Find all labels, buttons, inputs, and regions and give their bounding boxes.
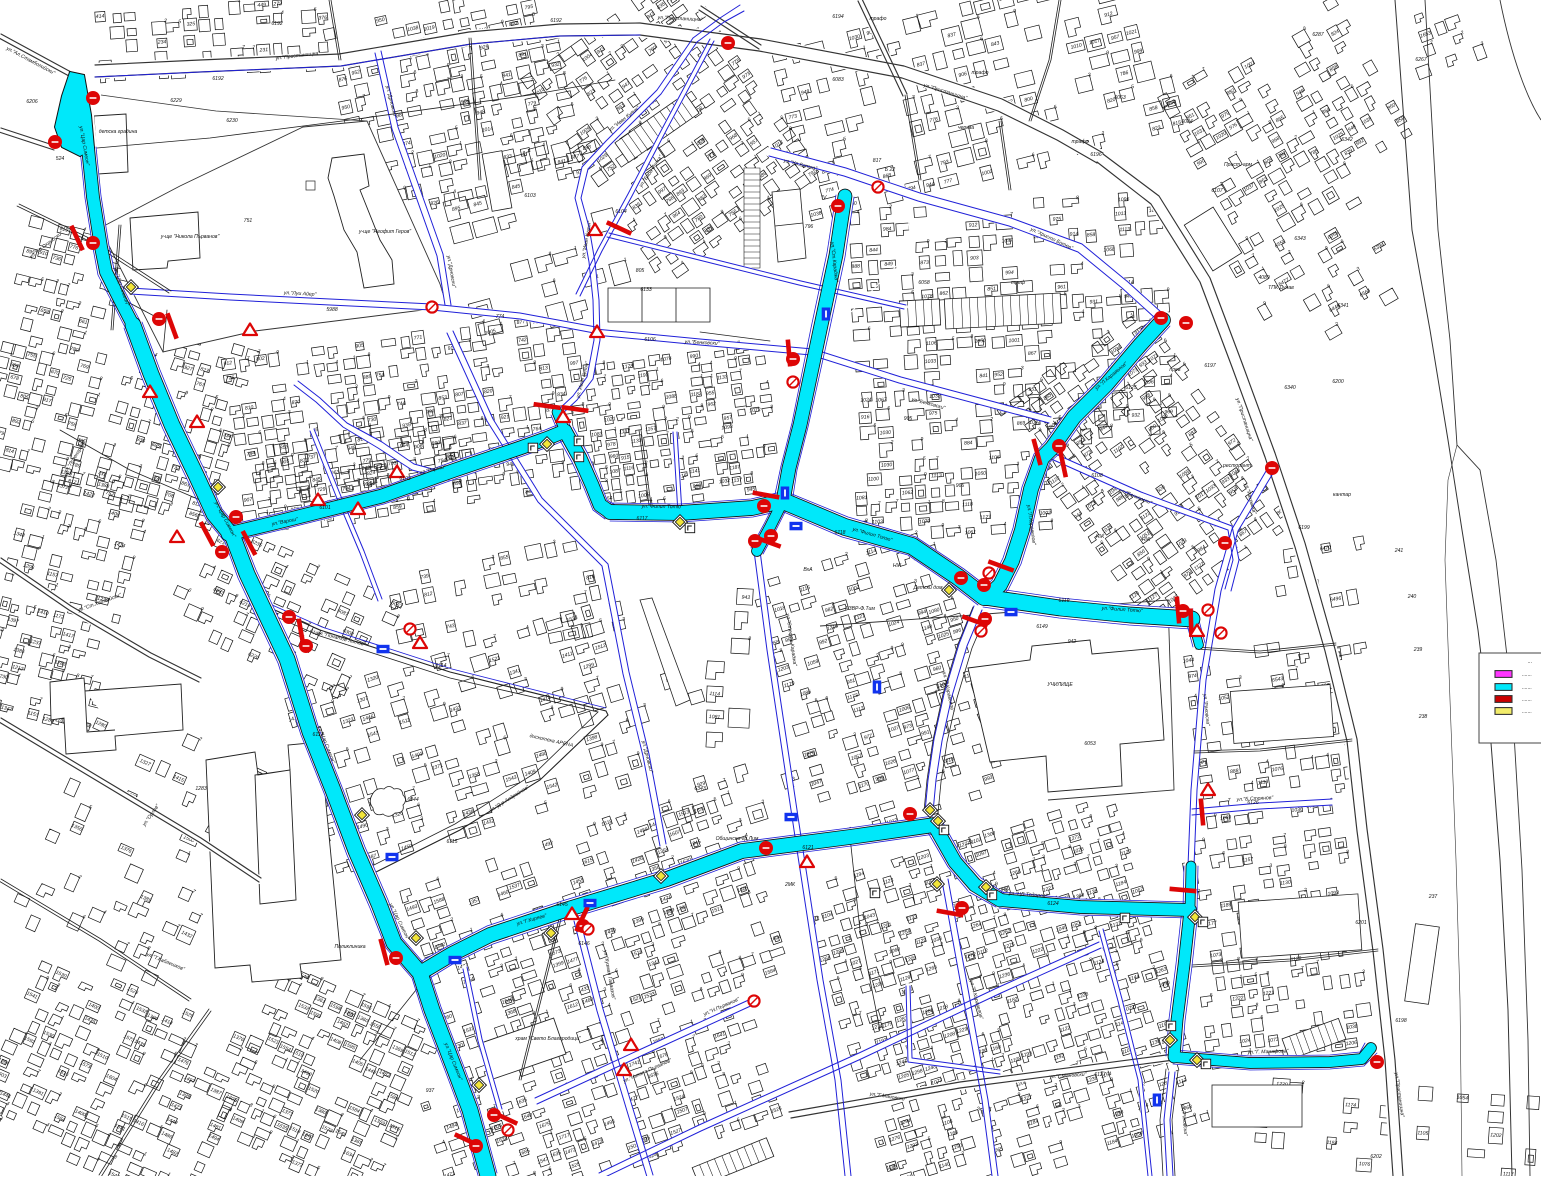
svg-text:6200: 6200 (1332, 379, 1343, 385)
svg-text:1068: 1068 (1103, 247, 1115, 254)
svg-text:955: 955 (706, 390, 715, 397)
svg-text:6: 6 (314, 7, 317, 13)
svg-text:805: 805 (636, 268, 645, 274)
svg-text:6119: 6119 (1059, 598, 1070, 604)
svg-text:960: 960 (609, 453, 618, 460)
svg-text:Б 22: Б 22 (885, 167, 896, 173)
svg-text:1054: 1054 (1456, 1095, 1468, 1102)
svg-text:5: 5 (178, 19, 181, 25)
svg-text:858: 858 (1087, 232, 1096, 239)
svg-text:943: 943 (741, 595, 750, 601)
svg-text:6126: 6126 (1247, 800, 1258, 806)
svg-text:7: 7 (242, 45, 245, 51)
svg-text:1118: 1118 (962, 502, 973, 509)
svg-text:813: 813 (539, 365, 548, 372)
svg-text:1100: 1100 (868, 476, 880, 483)
svg-text:4: 4 (1169, 373, 1172, 379)
svg-text:810: 810 (245, 405, 254, 412)
svg-text:862: 862 (939, 290, 948, 297)
svg-text:796: 796 (805, 224, 814, 230)
svg-text:1070: 1070 (919, 519, 931, 526)
svg-text:9: 9 (941, 523, 944, 529)
svg-text:3: 3 (1016, 461, 1019, 467)
svg-text:1106: 1106 (989, 455, 1001, 462)
svg-text:903: 903 (970, 255, 979, 262)
svg-text:771: 771 (413, 334, 422, 341)
svg-text:1: 1 (928, 499, 931, 505)
svg-text:...: ... (1528, 659, 1532, 665)
svg-text:1081: 1081 (709, 714, 721, 721)
svg-text:черква: черква (958, 125, 974, 131)
svg-text:8: 8 (1119, 293, 1122, 299)
svg-text:272: 272 (272, 1, 282, 8)
svg-text:851: 851 (987, 286, 996, 293)
svg-text:1: 1 (238, 0, 241, 4)
svg-text:6115: 6115 (447, 839, 458, 845)
svg-text:937: 937 (426, 1088, 435, 1094)
svg-text:1001: 1001 (1008, 337, 1020, 344)
svg-text:1050: 1050 (974, 338, 986, 345)
svg-text:916: 916 (861, 414, 870, 421)
svg-text:912: 912 (969, 222, 978, 229)
svg-text:974: 974 (1188, 673, 1197, 680)
svg-text:ресторант: ресторант (1222, 463, 1251, 469)
svg-text:7: 7 (936, 456, 939, 462)
svg-text:1096: 1096 (1118, 197, 1130, 204)
svg-text:6343: 6343 (1294, 236, 1305, 242)
svg-text:ТПК Дунав: ТПК Дунав (1268, 285, 1294, 291)
svg-text:951: 951 (1028, 386, 1037, 393)
svg-text:4: 4 (955, 417, 958, 423)
svg-text:751: 751 (244, 218, 253, 224)
svg-text:6063: 6063 (1114, 95, 1125, 101)
svg-text:.......: ....... (1522, 685, 1532, 691)
svg-text:трафо: трафо (972, 70, 989, 76)
svg-text:844: 844 (869, 247, 878, 254)
svg-text:6343: 6343 (694, 786, 705, 792)
svg-text:6133: 6133 (640, 287, 651, 293)
svg-text:754: 754 (375, 372, 384, 379)
svg-text:6201: 6201 (1355, 920, 1366, 926)
svg-text:957: 957 (723, 415, 732, 422)
svg-text:1030: 1030 (880, 430, 892, 437)
svg-text:961: 961 (1057, 284, 1066, 291)
svg-text:4089: 4089 (1258, 275, 1269, 281)
svg-text:742: 742 (518, 337, 527, 344)
svg-text:1: 1 (1082, 309, 1085, 315)
svg-text:детска градина: детска градина (99, 129, 138, 135)
svg-text:906: 906 (956, 483, 965, 489)
svg-text:6113: 6113 (313, 732, 324, 738)
svg-text:802: 802 (256, 356, 265, 363)
svg-text:837: 837 (458, 420, 467, 427)
svg-text:6192: 6192 (212, 76, 223, 82)
svg-text:трафо: трафо (1072, 139, 1089, 145)
svg-text:867: 867 (1028, 350, 1037, 357)
svg-text:5: 5 (911, 290, 914, 296)
svg-text:6101: 6101 (319, 505, 330, 511)
svg-text:1061: 1061 (965, 529, 977, 536)
svg-text:797: 797 (426, 408, 435, 415)
svg-text:884: 884 (964, 440, 973, 447)
svg-text:241: 241 (1394, 548, 1404, 554)
svg-text:9: 9 (920, 436, 923, 442)
svg-text:449: 449 (257, 2, 266, 9)
svg-text:859: 859 (393, 504, 402, 511)
svg-text:2: 2 (989, 417, 993, 423)
svg-text:914: 914 (1070, 231, 1079, 238)
svg-text:978: 978 (607, 441, 616, 448)
svg-text:807: 807 (455, 391, 464, 398)
svg-text:4: 4 (1080, 261, 1083, 267)
svg-text:6145: 6145 (556, 902, 567, 908)
svg-text:975: 975 (1052, 216, 1061, 223)
svg-text:853: 853 (279, 444, 288, 451)
svg-text:1033: 1033 (925, 358, 937, 365)
svg-text:IV: IV (822, 195, 827, 201)
svg-text:7: 7 (252, 45, 255, 51)
svg-text:6341: 6341 (1337, 303, 1348, 309)
svg-text:6340: 6340 (1284, 385, 1295, 391)
svg-text:6199: 6199 (1298, 525, 1309, 531)
svg-text:6117: 6117 (637, 516, 648, 522)
svg-text:744: 744 (397, 400, 406, 407)
svg-text:960: 960 (692, 483, 701, 490)
svg-text:6053: 6053 (1084, 741, 1095, 747)
svg-text:6106: 6106 (644, 337, 655, 343)
svg-text:.......: ....... (1522, 709, 1532, 715)
svg-text:5: 5 (873, 423, 876, 429)
svg-text:776: 776 (225, 375, 234, 382)
svg-text:9: 9 (926, 239, 929, 245)
svg-text:у-ще "Неофит Геров": у-ще "Неофит Геров" (358, 229, 411, 235)
svg-text:1050: 1050 (975, 471, 987, 478)
svg-text:4: 4 (856, 209, 859, 215)
svg-text:9: 9 (924, 472, 927, 478)
svg-text:1202: 1202 (1490, 1132, 1502, 1139)
svg-text:1013: 1013 (1115, 211, 1127, 218)
svg-text:6342: 6342 (1341, 137, 1352, 143)
svg-text:869: 869 (1017, 420, 1026, 427)
svg-text:5: 5 (923, 456, 926, 462)
svg-text:888: 888 (851, 263, 860, 270)
svg-text:6229: 6229 (170, 98, 181, 104)
svg-text:2: 2 (944, 238, 948, 244)
svg-text:905: 905 (355, 343, 364, 350)
svg-text:5: 5 (887, 406, 890, 412)
svg-text:НЖ: НЖ (1142, 537, 1151, 543)
svg-text:984: 984 (883, 226, 892, 233)
svg-text:8: 8 (748, 636, 751, 642)
svg-text:кантар: кантар (1333, 492, 1351, 498)
svg-text:6267: 6267 (1415, 57, 1426, 63)
svg-text:962: 962 (707, 401, 716, 408)
svg-text:4: 4 (281, 10, 284, 16)
svg-text:1067: 1067 (875, 397, 887, 404)
svg-text:3: 3 (902, 388, 905, 394)
svg-text:2МК: 2МК (784, 882, 796, 888)
svg-text:6206: 6206 (26, 99, 37, 105)
svg-text:у-ще "Никола Първанов": у-ще "Никола Първанов" (160, 234, 220, 240)
svg-text:ВхА: ВхА (803, 567, 813, 573)
svg-text:5: 5 (1063, 291, 1066, 297)
svg-text:5988: 5988 (326, 307, 337, 313)
svg-text:7: 7 (896, 499, 899, 505)
svg-text:932: 932 (1131, 412, 1140, 419)
svg-text:Общинско-гр.Лим: Общинско-гр.Лим (716, 836, 759, 842)
svg-text:Поликлиника: Поликлиника (334, 944, 365, 950)
svg-text:6114: 6114 (436, 663, 447, 669)
svg-text:6230: 6230 (226, 118, 237, 124)
svg-text:6149: 6149 (1036, 624, 1047, 630)
svg-text:.......: ....... (1522, 697, 1532, 703)
svg-text:4: 4 (1003, 521, 1006, 527)
svg-text:трафо: трафо (870, 16, 887, 22)
svg-text:325: 325 (186, 21, 195, 28)
svg-text:6202: 6202 (1370, 1154, 1381, 1160)
svg-text:1174: 1174 (1345, 1102, 1357, 1109)
svg-text:треф: треф (1011, 280, 1026, 286)
svg-text:885: 885 (362, 374, 371, 381)
svg-text:2: 2 (889, 440, 893, 446)
svg-text:912: 912 (223, 360, 232, 367)
svg-text:231: 231 (258, 47, 268, 54)
svg-text:УЧИЛИЩЕ: УЧИЛИЩЕ (1047, 682, 1073, 688)
svg-text:774: 774 (496, 314, 505, 320)
svg-text:1037: 1037 (1001, 238, 1013, 245)
svg-text:921: 921 (500, 414, 509, 421)
svg-text:3: 3 (911, 272, 914, 278)
svg-text:9: 9 (1003, 382, 1006, 388)
svg-text:6058: 6058 (918, 280, 929, 286)
svg-text:1105: 1105 (1417, 1130, 1429, 1137)
svg-text:3: 3 (957, 524, 960, 530)
svg-text:6107: 6107 (1211, 188, 1222, 194)
svg-text:6118: 6118 (835, 530, 846, 536)
svg-text:915: 915 (621, 455, 630, 462)
svg-text:234: 234 (157, 39, 167, 46)
svg-text:6125: 6125 (1125, 385, 1136, 391)
svg-text:873: 873 (920, 260, 929, 267)
svg-text:8: 8 (942, 499, 945, 505)
svg-text:6084: 6084 (1181, 119, 1192, 125)
svg-text:888: 888 (1230, 768, 1239, 775)
svg-text:1002: 1002 (1039, 510, 1051, 517)
svg-text:2: 2 (888, 204, 892, 210)
svg-text:1076: 1076 (1359, 1161, 1371, 1168)
svg-text:6192: 6192 (271, 21, 282, 27)
svg-text:5: 5 (951, 336, 954, 342)
svg-text:6102: 6102 (399, 476, 410, 482)
svg-text:997: 997 (570, 360, 579, 367)
svg-text:907: 907 (243, 497, 252, 504)
svg-text:6044: 6044 (407, 797, 418, 803)
svg-text:942: 942 (1068, 639, 1077, 645)
svg-text:239: 239 (1413, 647, 1423, 653)
svg-text:6083: 6083 (832, 77, 843, 83)
svg-text:905: 905 (904, 416, 913, 422)
svg-text:834: 834 (557, 391, 566, 398)
svg-text:6146: 6146 (578, 941, 589, 947)
svg-text:870: 870 (291, 399, 300, 406)
svg-text:1113: 1113 (1119, 227, 1130, 234)
svg-text:1113: 1113 (931, 473, 942, 480)
svg-text:.......: ....... (1522, 672, 1532, 678)
svg-text:8: 8 (1050, 518, 1053, 524)
svg-text:6121: 6121 (802, 845, 813, 851)
svg-text:Детски дом: Детски дом (913, 585, 943, 591)
svg-text:990: 990 (689, 353, 698, 360)
svg-text:Прист. арм: Прист. арм (1224, 162, 1253, 168)
svg-text:952: 952 (994, 372, 1003, 379)
svg-text:240: 240 (1407, 594, 1417, 600)
svg-text:1030: 1030 (881, 462, 893, 469)
svg-text:841: 841 (979, 373, 988, 380)
svg-text:прев: прев (1169, 367, 1180, 373)
svg-text:6104: 6104 (615, 209, 626, 215)
svg-text:849: 849 (884, 261, 893, 268)
svg-text:6: 6 (867, 326, 870, 332)
svg-text:237: 237 (1428, 894, 1438, 900)
svg-text:906: 906 (414, 443, 423, 450)
svg-text:376: 376 (318, 15, 327, 22)
svg-text:6197: 6197 (1204, 363, 1215, 369)
svg-text:1106: 1106 (926, 340, 938, 347)
svg-text:1283: 1283 (195, 786, 206, 792)
svg-text:8: 8 (1076, 195, 1079, 201)
svg-text:6108: 6108 (1091, 473, 1102, 479)
svg-text:2: 2 (163, 18, 167, 24)
svg-text:931: 931 (1089, 299, 1098, 306)
svg-text:414: 414 (96, 13, 105, 20)
svg-text:6196: 6196 (1090, 152, 1101, 158)
svg-text:НЖ: НЖ (893, 563, 902, 569)
svg-text:1062: 1062 (902, 490, 914, 497)
svg-text:1154: 1154 (1326, 1140, 1338, 1147)
svg-text:6124: 6124 (1047, 901, 1058, 907)
svg-text:храм "Свето Благородица": храм "Свето Благородица" (514, 1036, 581, 1042)
svg-text:1081: 1081 (856, 495, 868, 502)
svg-text:1114: 1114 (709, 691, 720, 698)
svg-text:7: 7 (878, 501, 881, 507)
svg-text:6103: 6103 (524, 193, 535, 199)
svg-text:817: 817 (873, 158, 882, 164)
svg-text:6198: 6198 (1395, 1018, 1406, 1024)
svg-text:ул."Филип Тотю": ул."Филип Тотю" (640, 504, 682, 511)
svg-text:820: 820 (484, 388, 493, 395)
svg-text:975: 975 (929, 410, 938, 417)
svg-text:6192: 6192 (550, 18, 561, 24)
svg-text:1024: 1024 (860, 397, 872, 404)
svg-text:8: 8 (970, 334, 973, 340)
svg-text:9: 9 (1166, 287, 1169, 293)
svg-text:238: 238 (1418, 714, 1428, 720)
svg-text:1127: 1127 (980, 514, 992, 521)
svg-text:РЗВР-Ф.Тим: РЗВР-Ф.Тим (845, 606, 875, 612)
svg-text:3: 3 (1021, 365, 1024, 371)
svg-text:994: 994 (1005, 270, 1014, 277)
svg-text:НЖ: НЖ (1096, 534, 1105, 540)
svg-text:6194: 6194 (832, 14, 843, 20)
svg-text:6287: 6287 (1312, 32, 1323, 38)
svg-text:853: 853 (438, 395, 447, 402)
svg-text:524: 524 (56, 156, 65, 162)
svg-text:6127: 6127 (1094, 1072, 1105, 1078)
